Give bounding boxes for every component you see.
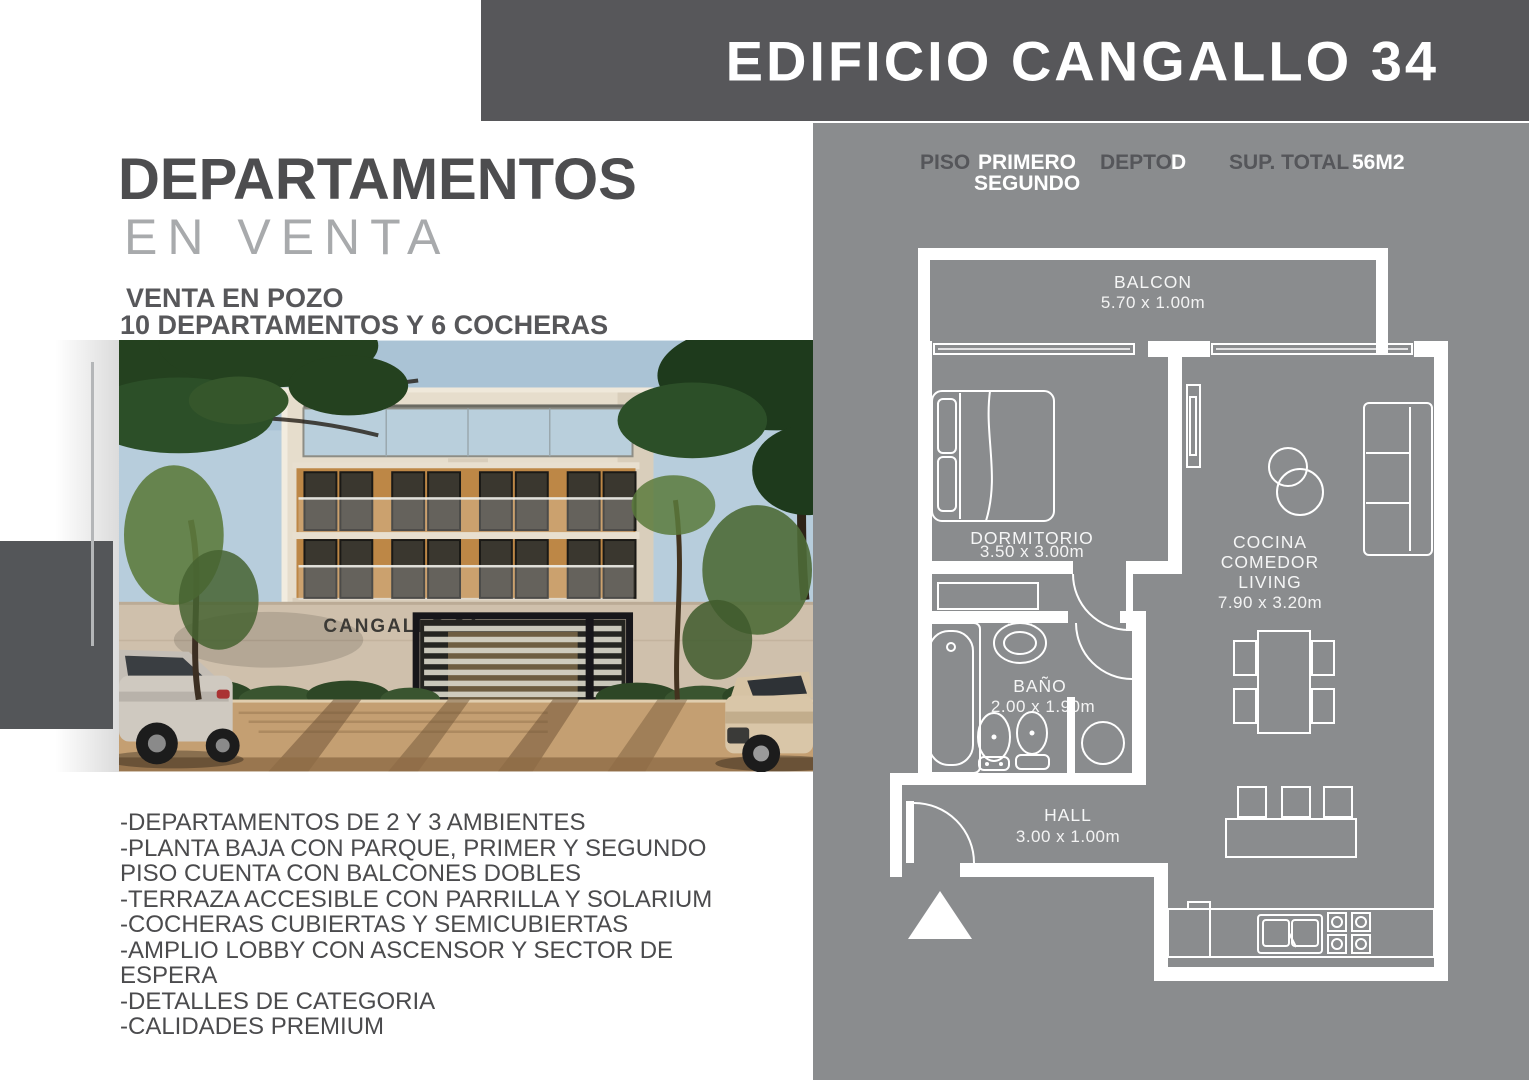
flyer-page: EDIFICIO CANGALLO 34 PISO PRIMERO SEGUND… — [0, 0, 1529, 1080]
sup-total-label: SUP. TOTAL — [1229, 151, 1349, 175]
plan-washer — [1082, 722, 1124, 764]
sup-total-value: 56M2 — [1352, 151, 1405, 175]
left-accent-line — [91, 362, 94, 646]
feature-item: -TERRAZA ACCESIBLE CON PARRILLA Y SOLARI… — [120, 887, 720, 913]
building-photo: CANGALLO 34 — [119, 340, 813, 772]
bano-size: 2.00 x 1.90m — [991, 697, 1095, 716]
page-title: DEPARTAMENTOS — [118, 146, 637, 213]
feature-item: -COCHERAS CUBIERTAS Y SEMICUBIERTAS — [120, 912, 720, 938]
plan-sofa — [1364, 403, 1432, 555]
building — [282, 387, 654, 603]
plan-labels: BALCON 5.70 x 1.00m DORMITORIO 3.50 x 3.… — [970, 272, 1322, 846]
piso-value-line2: SEGUNDO — [974, 172, 1080, 196]
plan-bed — [932, 391, 1054, 521]
plan-island-stools — [1226, 787, 1356, 857]
bano-label: BAÑO — [1013, 675, 1067, 696]
plan-dining-table — [1234, 631, 1334, 733]
header-bar: EDIFICIO CANGALLO 34 — [481, 0, 1529, 121]
dormitorio-size: 3.50 x 3.00m — [980, 542, 1084, 561]
left-accent-block — [0, 541, 113, 729]
cocina-label-3: LIVING — [1238, 572, 1301, 592]
header-title: EDIFICIO CANGALLO 34 — [726, 28, 1439, 93]
feature-item: -AMPLIO LOBBY CON ASCENSOR Y SECTOR DE E… — [120, 938, 720, 989]
feature-item: -CALIDADES PREMIUM — [120, 1014, 720, 1040]
floor-plan: BALCON 5.70 x 1.00m DORMITORIO 3.50 x 3.… — [890, 245, 1460, 985]
page-subtitle: EN VENTA — [124, 208, 450, 266]
depto-value: D — [1171, 151, 1186, 175]
hall-label: HALL — [1044, 805, 1092, 825]
plan-side-tables — [1269, 448, 1323, 515]
plan-bidet — [978, 713, 1010, 770]
balcon-size: 5.70 x 1.00m — [1101, 293, 1205, 312]
plan-toilet — [1016, 712, 1049, 769]
feature-item: -DEPARTAMENTOS DE 2 Y 3 AMBIENTES — [120, 810, 720, 836]
cocina-label-1: COCINA — [1233, 532, 1307, 552]
piso-label: PISO — [920, 151, 970, 175]
feature-item: -PLANTA BAJA CON PARQUE, PRIMER Y SEGUND… — [120, 836, 720, 887]
plan-tv-unit — [1187, 385, 1200, 467]
cocina-label-2: COMEDOR — [1221, 552, 1319, 572]
feature-item: -DETALLES DE CATEGORIA — [120, 989, 720, 1015]
hall-size: 3.00 x 1.00m — [1016, 827, 1120, 846]
cocina-size: 7.90 x 3.20m — [1218, 593, 1322, 612]
features-list: -DEPARTAMENTOS DE 2 Y 3 AMBIENTES -PLANT… — [120, 810, 720, 1040]
depto-label: DEPTO — [1100, 151, 1172, 175]
balcon-label: BALCON — [1114, 272, 1192, 292]
plan-kitchen-counter — [1168, 902, 1434, 957]
plan-walls — [890, 248, 1448, 981]
units-line: 10 DEPARTAMENTOS Y 6 COCHERAS — [120, 310, 608, 341]
